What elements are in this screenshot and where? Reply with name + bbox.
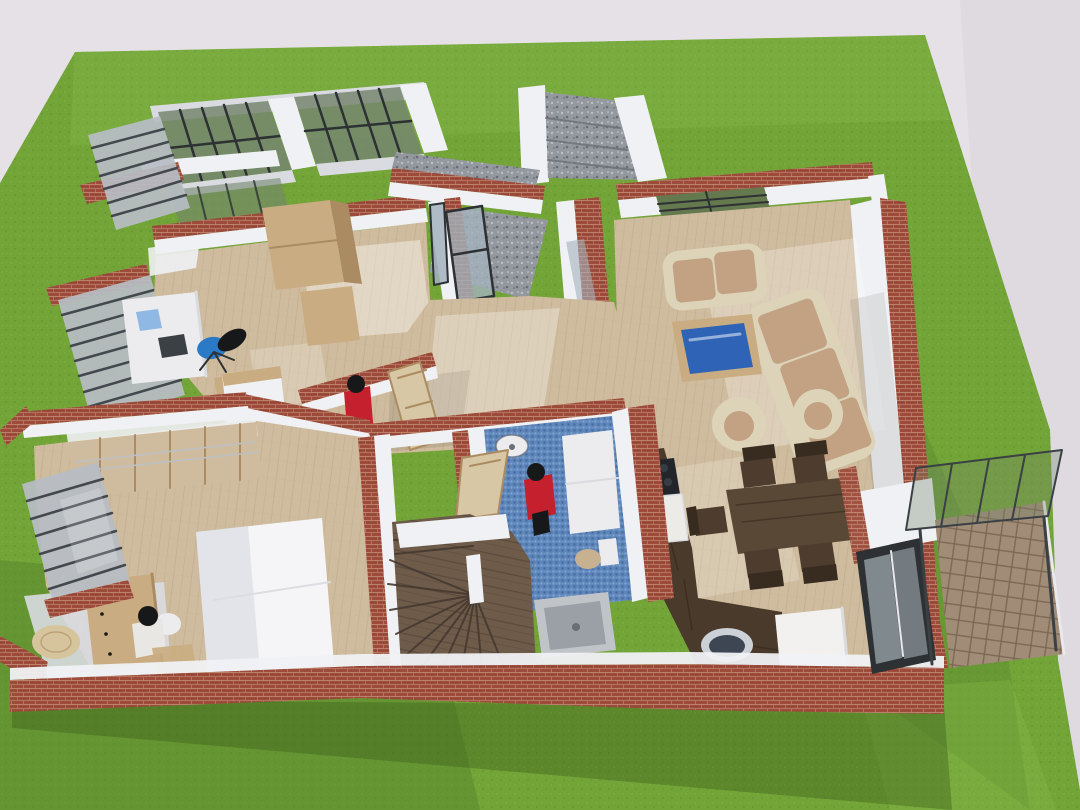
armchair-2-cushion bbox=[804, 402, 832, 430]
person-bath-head bbox=[527, 463, 545, 481]
toilet-seat bbox=[575, 549, 601, 569]
chair-2-seat bbox=[792, 454, 828, 484]
desk-handle-3 bbox=[104, 632, 108, 636]
burner-2 bbox=[660, 464, 668, 472]
desk-handle-4 bbox=[108, 652, 112, 656]
armchair-1-cushion bbox=[724, 411, 754, 441]
keyboard bbox=[158, 334, 188, 358]
desk-handle-2 bbox=[100, 612, 104, 616]
chair-1-seat bbox=[740, 458, 776, 488]
sink-drain bbox=[509, 444, 515, 450]
person-hallway-head bbox=[347, 375, 365, 393]
round-table bbox=[32, 625, 80, 659]
floor-plan-3d-render bbox=[0, 0, 1080, 810]
loveseat-cushion-1 bbox=[672, 257, 716, 303]
coffee-table-glass bbox=[681, 323, 753, 374]
render-viewport bbox=[0, 0, 1080, 810]
burner-4 bbox=[664, 478, 672, 486]
toilet-tank bbox=[598, 538, 619, 566]
laptop-screen bbox=[136, 309, 162, 331]
person-bath-legs bbox=[532, 510, 550, 536]
loveseat bbox=[661, 242, 769, 312]
shower-drain bbox=[572, 623, 580, 631]
entry-steps bbox=[518, 85, 667, 185]
person-desk-head bbox=[138, 606, 158, 626]
loveseat-cushion-2 bbox=[713, 249, 757, 295]
office-dresser-ne bbox=[300, 286, 360, 346]
